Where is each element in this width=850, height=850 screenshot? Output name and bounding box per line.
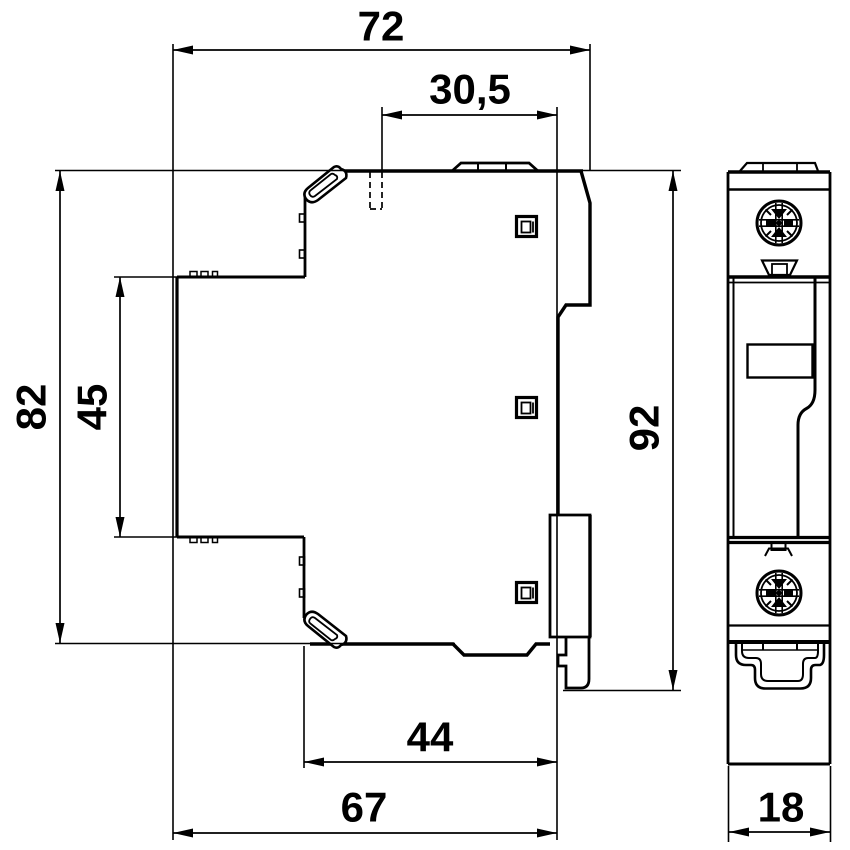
dim-housing-height: 82 [8, 171, 61, 643]
side-din-foot [558, 637, 589, 688]
dim-top-offset-label: 30,5 [429, 66, 511, 113]
terminal-opening-middle-icon [517, 398, 537, 418]
dim-base-width: 67 [173, 784, 557, 834]
din-foot-latch [736, 644, 824, 689]
front-inner-right-contour [798, 277, 815, 537]
side-view [177, 163, 590, 688]
front-view [728, 163, 830, 764]
front-upper-clip [762, 261, 797, 276]
front-top-bump-ticks [763, 163, 797, 171]
top-latch-icon [304, 166, 346, 202]
dim-top-offset: 30,5 [382, 66, 557, 116]
front-top-bump [740, 163, 818, 171]
drawing-canvas: 72 30,5 82 45 92 44 67 18 [0, 0, 850, 850]
dim-lower-width-label: 44 [407, 714, 454, 761]
dim-housing-height-label: 82 [8, 384, 55, 431]
dim-module-width: 18 [729, 784, 830, 833]
dim-module-width-label: 18 [758, 784, 805, 831]
front-divider-lower [728, 538, 830, 543]
hidden-edge-dashed [370, 172, 382, 209]
dim-rail-block-height-label: 45 [69, 384, 116, 431]
side-block-horizontals [177, 277, 305, 537]
side-block-ticks [190, 272, 218, 543]
side-bottom-edge [310, 644, 550, 655]
dim-lower-width: 44 [304, 714, 557, 763]
dimension-drawing: 72 30,5 82 45 92 44 67 18 [0, 0, 850, 850]
front-lower-clip [765, 543, 792, 556]
dim-base-width-label: 67 [341, 784, 388, 831]
dimensions: 72 30,5 82 45 92 44 67 18 [8, 3, 831, 843]
bottom-latch-icon [304, 612, 346, 648]
dim-overall-width-label: 72 [358, 3, 405, 50]
terminal-opening-bottom-icon [517, 583, 537, 603]
side-right-edge [558, 171, 590, 515]
screw-head-top-icon [757, 201, 801, 245]
dim-overall-height-label: 92 [621, 405, 668, 452]
terminal-opening-top-icon [517, 217, 537, 237]
terminal-opening-icons [517, 217, 537, 603]
label-window [748, 345, 813, 378]
side-right-block [550, 515, 590, 637]
screw-head-bottom-icon [757, 571, 801, 615]
dim-rail-block-height: 45 [69, 277, 121, 537]
dim-overall-height: 92 [621, 171, 674, 690]
dim-overall-width: 72 [173, 3, 590, 51]
